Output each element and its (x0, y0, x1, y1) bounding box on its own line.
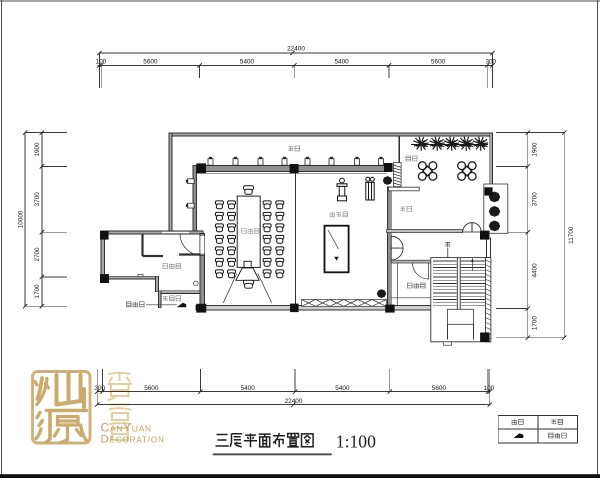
svg-text:11700: 11700 (568, 226, 575, 244)
svg-text:5400: 5400 (240, 59, 255, 66)
svg-text:1900: 1900 (532, 142, 539, 157)
svg-text:1700: 1700 (34, 284, 41, 299)
svg-text:100: 100 (484, 385, 495, 392)
svg-text:3700: 3700 (34, 192, 41, 207)
svg-text:5400: 5400 (334, 59, 349, 66)
svg-text:10000: 10000 (17, 210, 24, 228)
svg-text:22400: 22400 (287, 46, 305, 53)
svg-text:5400: 5400 (241, 385, 256, 392)
svg-text:2700: 2700 (34, 247, 41, 262)
svg-text:300: 300 (94, 385, 105, 392)
svg-text:5600: 5600 (431, 59, 446, 66)
svg-text:300: 300 (485, 59, 496, 66)
svg-text:1700: 1700 (532, 316, 539, 331)
svg-text:4400: 4400 (532, 263, 539, 278)
svg-text:22400: 22400 (285, 398, 303, 405)
svg-text:5600: 5600 (432, 385, 447, 392)
svg-text:1:100: 1:100 (336, 431, 376, 451)
svg-text:100: 100 (96, 59, 107, 66)
svg-text:CANYUAN: CANYUAN (101, 421, 152, 435)
svg-text:5600: 5600 (144, 385, 159, 392)
svg-text:3700: 3700 (532, 192, 539, 207)
svg-text:5400: 5400 (335, 385, 350, 392)
svg-text:5600: 5600 (143, 59, 158, 66)
svg-text:1900: 1900 (34, 142, 41, 157)
svg-text:DECORATION: DECORATION (101, 434, 165, 446)
